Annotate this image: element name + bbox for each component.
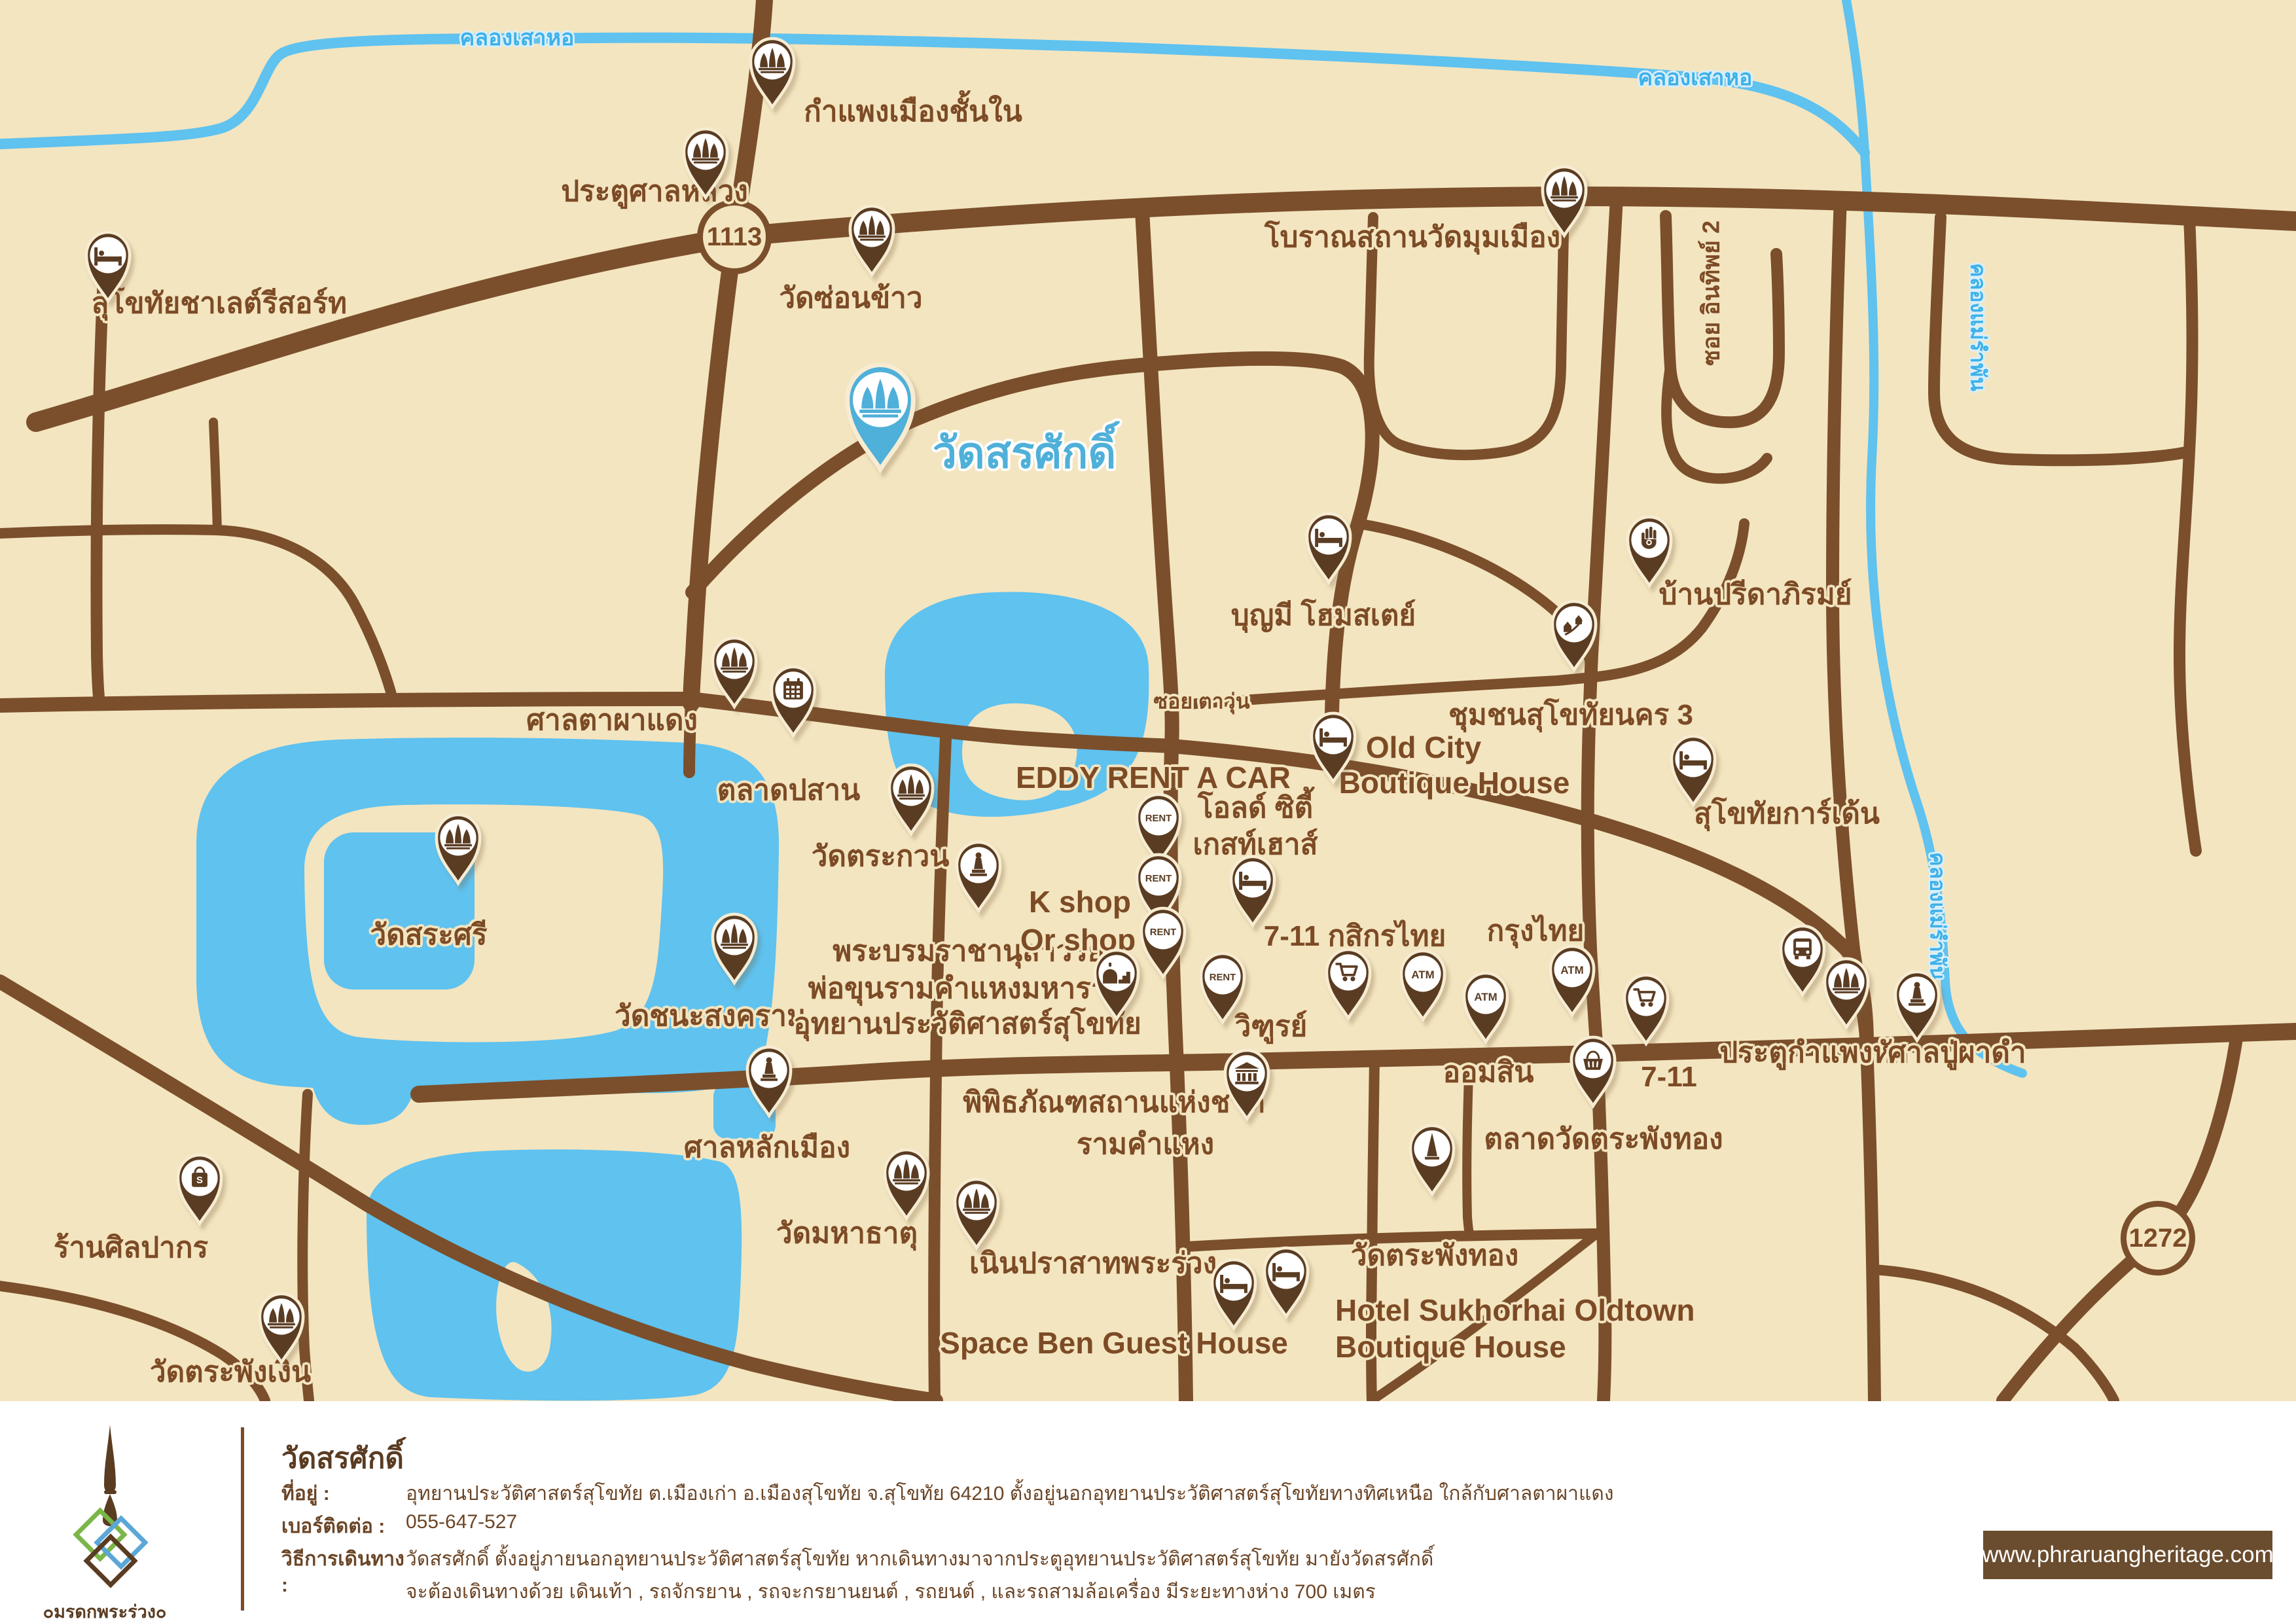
svg-text:RENT: RENT [1150,927,1177,938]
map-label: คลองแม่รำพัน [1921,852,1954,980]
map-pin-bag[interactable]: S [170,1149,230,1231]
atm-icon: ATM [1456,967,1516,1046]
map-pin-atm[interactable]: ATM [1542,940,1602,1022]
map-pin-cart[interactable] [1616,969,1676,1051]
svg-text:RENT: RENT [1210,972,1236,983]
atm-icon: ATM [1393,945,1453,1024]
basket-icon [1563,1031,1623,1110]
map-label: Boutique House [1335,1329,1566,1364]
phraruang-heritage-logo [36,1419,187,1609]
svg-text:RENT: RENT [1145,813,1172,824]
map-label: ร้านศิลปากร [54,1224,208,1270]
temple-icon [675,123,736,202]
footer-row-value: อุทยานประวัติศาสตร์สุโขทัย ต.เมืองเก่า อ… [406,1478,2173,1509]
map-pin-temple[interactable] [881,759,941,841]
map-label: K shop [1029,884,1131,919]
map-pin-cart[interactable] [1318,944,1378,1026]
map-pin-bed[interactable] [1223,851,1283,933]
map-pin-museum[interactable] [1217,1044,1277,1126]
map-pin-temple[interactable] [428,809,488,891]
bed-icon [1663,730,1723,809]
map-base-layer [0,0,2296,1401]
map-label: วัดซ่อนข้าว [779,275,922,321]
monument-icon [948,836,1009,915]
map-pin-bed[interactable] [1303,707,1363,789]
temple-icon [742,33,802,111]
map-label: กำแพงเมืองชั้นใน [804,88,1022,134]
map-label: ซอย อินทิพย์ 2 [1693,221,1730,366]
map-label: บ้านปรีดาภิรมย์ [1659,571,1852,617]
temple-icon [428,809,488,887]
temple-icon [834,355,926,474]
map-label: ตลาดวัดตระพังทอง [1484,1116,1723,1162]
map-pin-temple[interactable] [1816,953,1876,1035]
map-canvas[interactable]: RENT RENT RENT ATM ATM RE [0,0,2296,1401]
footer-row-value: 055-647-527 [406,1511,2173,1533]
map-pin-chedi[interactable] [1402,1120,1462,1202]
footer-row: ที่อยู่ :อุทยานประวัติศาสตร์สุโขทัย ต.เม… [281,1478,2245,1509]
map-label: วัดชนะสงคราม [615,993,806,1039]
map-pin-temple[interactable] [704,908,764,990]
map-pin-atm[interactable]: ATM [1456,967,1516,1049]
map-pin-monument[interactable] [1887,966,1947,1048]
temple-icon [1816,953,1876,1031]
footer-row-label: ที่อยู่ : [281,1478,406,1509]
map-pin-bed[interactable] [1663,730,1723,812]
map-pin-rent[interactable]: RENT [1193,948,1253,1029]
temple-icon [842,200,902,279]
footer-row-value: จะต้องเดินทางด้วย เดินเท้า , รถจักรยาน ,… [406,1577,2173,1607]
map-pin-temple[interactable] [704,632,764,714]
calendar-icon [763,661,823,740]
map-label: ตลาดปสาน [717,767,860,813]
map-label: วัดสระศรี [370,912,488,957]
temple-icon [704,632,764,711]
map-label: คลองเสาหอ [460,20,575,55]
temple-icon [876,1144,937,1222]
map-pin-monument[interactable] [948,836,1009,918]
svg-text:S: S [196,1175,203,1186]
monument-icon [739,1041,799,1120]
bed-icon [1303,707,1363,786]
road-badge-1272: 1272 [2121,1201,2195,1275]
atm-icon: ATM [1542,940,1602,1019]
map-label: ซอย ตาวุ่น [1153,685,1249,719]
temple-icon [946,1173,1007,1252]
page: RENT RENT RENT ATM ATM RE [0,0,2296,1623]
footer: ๐มรดกพระร่วง๐ วัดสรศักดิ์ ที่อยู่ :อุทยา… [0,1401,2296,1623]
footer-row-value: วัดสรศักดิ์ ตั้งอยู่ภายนอกอุทยานประวัติศ… [406,1544,2173,1575]
bed-icon [1299,508,1359,586]
map-pin-temple[interactable] [675,123,736,205]
map-label: ชุมชนสุโขทัยนคร 3 [1448,692,1693,738]
map-pin-temple[interactable] [251,1288,312,1370]
map-pin-bed[interactable] [1256,1242,1316,1324]
map-label: Boutique House [1339,765,1570,800]
footer-title: วัดสรศักดิ์ [281,1435,404,1481]
map-pin-temple[interactable] [842,200,902,282]
svg-text:RENT: RENT [1145,874,1172,884]
map-pin-bed[interactable] [78,226,138,308]
map-label: ศาลหลักเมือง [684,1124,850,1170]
footer-row: เบอร์ติดต่อ :055-647-527 [281,1511,2245,1542]
map-label: โบราณสถานวัดมุมเมือง [1265,214,1560,260]
chedi-icon [1402,1120,1462,1198]
diamond-marks [76,1510,145,1585]
map-pin-monument[interactable] [739,1041,799,1123]
footer-row: จะต้องเดินทางด้วย เดินเท้า , รถจักรยาน ,… [281,1577,2245,1607]
map-pin-temple[interactable] [876,1144,937,1226]
temple-icon [704,908,764,987]
complex-icon [1086,944,1147,1023]
svg-text:ATM: ATM [1411,969,1434,981]
map-pin-temple[interactable] [742,33,802,115]
map-label: ศาลตาผาแดง [526,697,698,743]
cart-icon [1616,969,1676,1048]
map-pin-temple[interactable] [946,1173,1007,1255]
map-pin-atm[interactable]: ATM [1393,945,1453,1027]
map-pin-houses[interactable] [1544,596,1604,677]
map-pin-bed[interactable] [1299,508,1359,590]
map-pin-bed[interactable] [1204,1254,1264,1336]
map-pin-basket[interactable] [1563,1031,1623,1113]
bed-icon [78,226,138,305]
monument-icon [1887,966,1947,1044]
cart-icon [1318,944,1378,1022]
map-label: ออมสิน [1443,1049,1534,1095]
rent-icon: RENT [1193,948,1253,1026]
map-label: ประตูกำแพงหัก [1719,1029,1909,1075]
map-label: บุญมี โฮมสเตย์ [1231,592,1416,638]
map-label: Hotel Sukhorhai Oldtown [1335,1293,1695,1328]
hand-icon [1619,511,1679,590]
brand-text: ๐มรดกพระร่วง๐ [43,1597,167,1623]
map-pin-calendar[interactable] [763,661,823,743]
map-label: คลองแม่รำพัน [1962,263,1995,391]
bed-icon [1256,1242,1316,1321]
map-label: วัดตระพังทอง [1351,1232,1519,1278]
footer-divider [241,1427,244,1611]
map-label: รามคำแหง [1077,1121,1214,1167]
map-pin-complex[interactable] [1086,944,1147,1026]
temple-icon [881,759,941,838]
map-label: วัดสรศักดิ์ [933,419,1116,488]
houses-icon [1544,596,1604,674]
bag-icon: S [170,1149,230,1228]
map-label: Old City [1366,730,1481,765]
museum-icon [1217,1044,1277,1123]
website-link[interactable]: www.phraruangheritage.com [1983,1531,2272,1579]
svg-text:ATM: ATM [1560,964,1583,976]
map-label: 7-11 [1641,1061,1697,1094]
svg-text:ATM: ATM [1474,991,1497,1003]
bed-icon [1223,851,1283,929]
temple-icon [251,1288,312,1366]
map-pin-temple[interactable] [1534,161,1594,243]
bed-icon [1204,1254,1264,1332]
map-label: คลองเสาหอ [1638,60,1753,95]
highlight-pin-wat-sorasak[interactable] [834,355,926,478]
footer-row-label: เบอร์ติดต่อ : [281,1511,406,1542]
temple-icon [1534,161,1594,240]
map-pin-hand[interactable] [1619,511,1679,593]
chedi-spire-icon [103,1425,117,1526]
